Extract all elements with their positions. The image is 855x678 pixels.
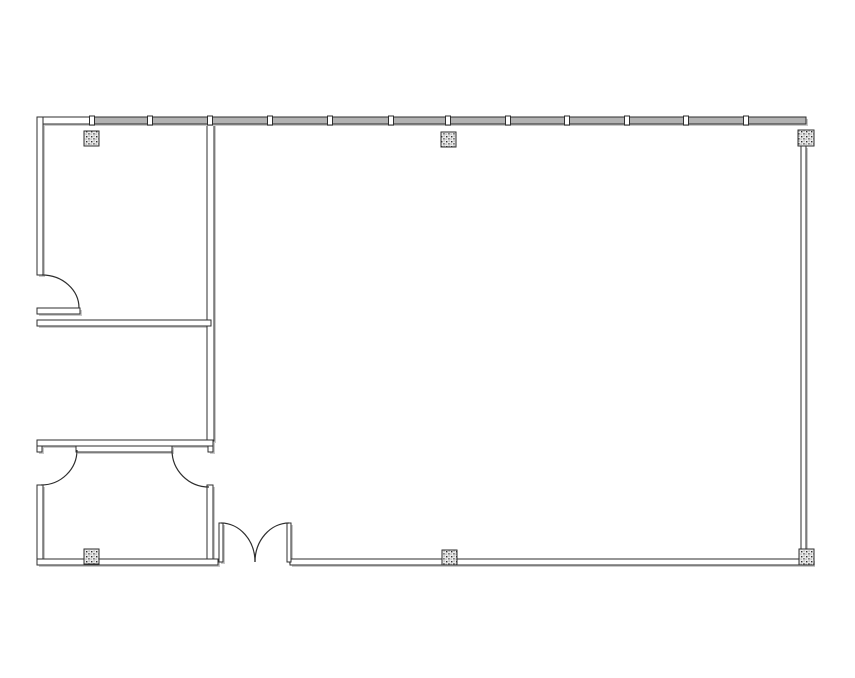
- top-wall-west-segment: [37, 117, 92, 124]
- partition-wall-vertical: [207, 124, 214, 441]
- mullion-tick-1: [90, 116, 95, 125]
- mullion-tick-4: [268, 116, 273, 125]
- mullion-tick-9: [565, 116, 570, 125]
- room3-door-east-swing: [172, 450, 209, 487]
- mullion-tick-12: [744, 116, 749, 125]
- column-southeast: [799, 549, 814, 565]
- lower-wall-cap-west: [37, 446, 42, 452]
- exterior-wall-west-upper: [37, 117, 43, 275]
- entry-door-right-leaf: [287, 523, 291, 562]
- column-northeast: [798, 130, 814, 146]
- partition-wall-mid: [37, 320, 211, 326]
- exterior-wall-east: [801, 146, 806, 550]
- room3-door-west-swing: [41, 450, 77, 485]
- column-northwest: [84, 131, 99, 146]
- lower-wall-stub-center: [76, 446, 172, 452]
- exterior-wall-west-lower: [37, 485, 43, 565]
- column-north-mid: [441, 132, 456, 147]
- partition-wall-lower: [37, 440, 213, 446]
- mullion-tick-7: [446, 116, 451, 125]
- entry-door-right-swing: [255, 523, 289, 562]
- entry-door-left-swing: [221, 523, 255, 562]
- lower-wall-cap-east: [208, 446, 213, 452]
- mullion-tick-8: [506, 116, 511, 125]
- column-southwest: [84, 549, 99, 564]
- floor-plan-canvas: [0, 0, 855, 678]
- floor-plan-drawing: [0, 0, 855, 678]
- mullion-tick-2: [148, 116, 153, 125]
- mullion-tick-10: [625, 116, 630, 125]
- column-south-mid: [442, 550, 457, 565]
- mullion-tick-11: [684, 116, 689, 125]
- room3-wall-east: [207, 485, 213, 560]
- mullion-tick-5: [328, 116, 333, 125]
- partition-stub-room1: [37, 308, 80, 314]
- mullion-tick-3: [208, 116, 213, 125]
- bottom-wall-west: [37, 559, 218, 565]
- bottom-wall-east: [290, 559, 813, 565]
- entry-door-left-leaf: [219, 523, 223, 562]
- room1-door-swing: [42, 275, 79, 308]
- mullion-tick-6: [389, 116, 394, 125]
